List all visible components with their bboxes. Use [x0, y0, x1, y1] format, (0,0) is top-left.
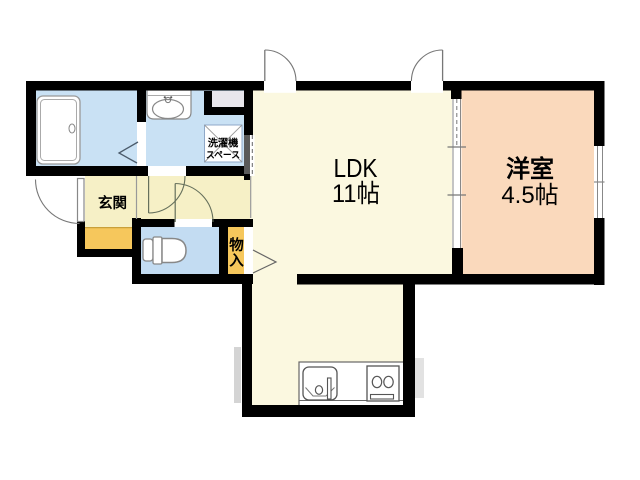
svg-text:4.5帖: 4.5帖	[501, 182, 558, 209]
svg-text:洗濯機: 洗濯機	[208, 137, 239, 150]
svg-text:玄関: 玄関	[98, 194, 127, 212]
svg-text:スペース: スペース	[206, 150, 240, 160]
svg-text:洋室: 洋室	[506, 155, 554, 183]
svg-text:11帖: 11帖	[332, 180, 380, 208]
svg-text:LDK: LDK	[334, 153, 379, 183]
svg-text:物: 物	[229, 236, 244, 254]
svg-text:入: 入	[229, 253, 244, 270]
